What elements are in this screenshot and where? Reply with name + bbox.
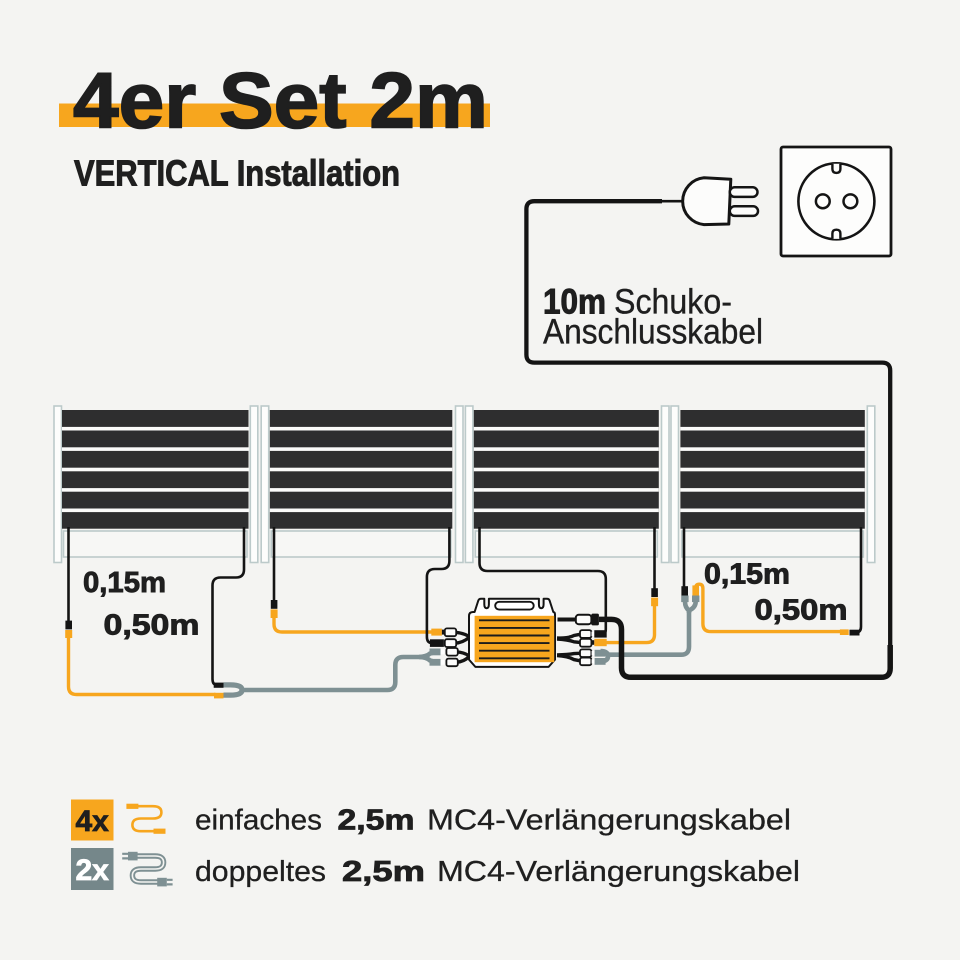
svg-text:einfaches: einfaches	[195, 805, 322, 837]
svg-text:2,5m: 2,5m	[342, 856, 425, 888]
svg-text:VERTICAL Installation: VERTICAL Installation	[74, 153, 400, 194]
svg-text:Anschlusskabel: Anschlusskabel	[543, 313, 763, 352]
svg-text:MC4-Verlängerungskabel: MC4-Verlängerungskabel	[427, 805, 791, 837]
svg-text:MC4-Verlängerungskabel: MC4-Verlängerungskabel	[437, 856, 800, 888]
svg-text:2x: 2x	[76, 854, 110, 887]
svg-text:0,50m: 0,50m	[104, 610, 200, 642]
svg-text:4x: 4x	[76, 805, 110, 838]
svg-text:0,15m: 0,15m	[704, 559, 790, 591]
svg-text:0,50m: 0,50m	[755, 595, 848, 627]
svg-text:4er Set 2m: 4er Set 2m	[73, 56, 488, 145]
svg-text:doppeltes: doppeltes	[195, 856, 326, 888]
svg-text:2,5m: 2,5m	[338, 805, 415, 837]
svg-text:0,15m: 0,15m	[83, 567, 166, 599]
